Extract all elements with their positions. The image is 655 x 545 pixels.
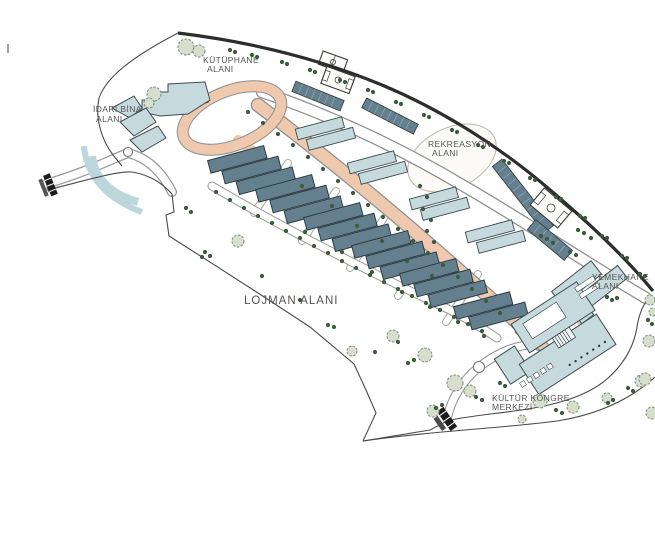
- tree-dot: [425, 229, 429, 233]
- tree-dot: [441, 263, 445, 267]
- tree-dot: [400, 290, 404, 294]
- tree-dot: [533, 178, 537, 182]
- tree-dot: [340, 250, 344, 254]
- tree-dot: [438, 308, 442, 312]
- tree: [347, 346, 357, 356]
- tree-dot: [480, 329, 484, 333]
- tree-dot: [554, 408, 558, 412]
- tree-dot: [380, 239, 384, 243]
- tree-dot: [484, 299, 488, 303]
- site-plan-page: KÜTÜPHANE ALANI İDARİ BİNA ALANI REKREAS…: [0, 0, 655, 545]
- tree-dot: [373, 350, 377, 354]
- tree-dot: [582, 231, 586, 235]
- tree-dot: [421, 207, 425, 211]
- tree-dot: [351, 191, 355, 195]
- tree-dot: [434, 406, 438, 410]
- west-roundabout: [124, 148, 133, 157]
- tree-dot: [455, 130, 459, 134]
- tree-dot: [507, 161, 511, 165]
- tree-dot: [405, 259, 409, 263]
- tree-dot: [260, 274, 264, 278]
- tree-dot: [306, 155, 310, 159]
- tree-dot: [574, 253, 578, 257]
- tree: [447, 375, 463, 391]
- tree-dot: [466, 322, 470, 326]
- tree-dot: [330, 204, 334, 208]
- tree-dot: [200, 255, 204, 259]
- tree-dot: [425, 195, 429, 199]
- tree-dot: [440, 403, 444, 407]
- tree-dot: [340, 259, 344, 263]
- tree-dot: [428, 305, 432, 309]
- tree-dot: [399, 102, 403, 106]
- tree-dot: [452, 315, 456, 319]
- tree-dot: [430, 274, 434, 278]
- tree-dot: [326, 323, 330, 327]
- tree-dot: [625, 256, 629, 260]
- tree-dot: [184, 206, 188, 210]
- tree-dot: [312, 244, 316, 248]
- tree-dot: [354, 266, 358, 270]
- label-admin-area: İDARİ BİNA: [93, 104, 142, 114]
- tree-dot: [545, 237, 549, 241]
- tree-dot: [300, 184, 304, 188]
- tree-dot: [482, 334, 486, 338]
- tree-dot: [381, 215, 385, 219]
- label-admin-area-2: ALANI: [96, 114, 123, 124]
- tree-dot: [208, 254, 212, 258]
- tree-dot: [394, 100, 398, 104]
- tree-dot: [429, 218, 433, 222]
- label-housing-area: LOJMAN ALANI: [244, 295, 338, 307]
- south-roundabout: [474, 362, 485, 373]
- tree-dot: [371, 90, 375, 94]
- tree-dot: [418, 184, 422, 188]
- tree-dot: [539, 234, 543, 238]
- tree-dot: [270, 221, 274, 225]
- tree-dot: [332, 325, 336, 329]
- parking-strip: [362, 98, 419, 134]
- tree-dot: [291, 143, 295, 147]
- tree: [464, 385, 476, 397]
- tree-dot: [583, 216, 587, 220]
- tree-dot: [214, 190, 218, 194]
- tree-dot: [313, 70, 317, 74]
- tree-dot: [326, 251, 330, 255]
- tree-dot: [410, 294, 414, 298]
- tree: [645, 295, 655, 305]
- tree-dot: [568, 250, 572, 254]
- tree-dot: [600, 234, 604, 238]
- tree-dot: [284, 229, 288, 233]
- tree-dot: [355, 224, 359, 228]
- tree-dot: [396, 287, 400, 291]
- tree-dot: [382, 280, 386, 284]
- tree-dot: [427, 115, 431, 119]
- tree-dot: [611, 398, 615, 402]
- tree-dot: [646, 318, 650, 322]
- tree-dot: [366, 88, 370, 92]
- tree-dot: [470, 287, 474, 291]
- tree: [639, 373, 651, 385]
- label-cafeteria-area-2: ALANI: [592, 281, 619, 291]
- tree-dot: [308, 68, 312, 72]
- tree-dot: [370, 270, 374, 274]
- tree-dot: [559, 197, 563, 201]
- tree: [232, 235, 244, 247]
- tree-dot: [406, 361, 410, 365]
- tree-dot: [242, 206, 246, 210]
- tree-dot: [498, 311, 502, 315]
- tree-dot: [554, 195, 558, 199]
- tree-dot: [426, 251, 430, 255]
- tree-dot: [256, 214, 260, 218]
- tree-dot: [422, 113, 426, 117]
- tree-dot: [298, 236, 302, 240]
- tree-dot: [610, 298, 614, 302]
- tree-dot: [396, 227, 400, 231]
- tree: [418, 348, 432, 362]
- label-recreation-area-2: ALANI: [432, 148, 459, 158]
- tree: [649, 308, 655, 316]
- tree-dot: [303, 230, 307, 234]
- tree: [646, 407, 655, 419]
- tree-dot: [424, 301, 428, 305]
- tree-dot: [450, 128, 454, 132]
- tree-dot: [203, 250, 207, 254]
- tree-dot: [631, 389, 635, 393]
- tree-dot: [576, 228, 580, 232]
- tree-dot: [650, 322, 654, 326]
- label-culture-center-2: MERKEZİ: [492, 402, 533, 412]
- tree-dot: [456, 275, 460, 279]
- tree-dot: [620, 254, 624, 258]
- tree-dot: [411, 239, 415, 243]
- tree-dot: [551, 241, 555, 245]
- tree-dot: [336, 179, 340, 183]
- tree: [643, 335, 655, 347]
- tree-dot: [474, 395, 478, 399]
- tree-dot: [626, 386, 630, 390]
- tree: [178, 39, 194, 55]
- tree-dot: [412, 358, 416, 362]
- tree-dot: [280, 60, 284, 64]
- label-library-area-2: ALANI: [207, 64, 234, 74]
- tree-dot: [321, 167, 325, 171]
- tree: [518, 415, 526, 423]
- tree-dot: [589, 236, 593, 240]
- tree-dot: [396, 340, 400, 344]
- tree-dot: [456, 320, 460, 324]
- tree-dot: [528, 176, 532, 180]
- tree-dot: [276, 132, 280, 136]
- tree-dot: [578, 214, 582, 218]
- tree-dot: [560, 411, 564, 415]
- tree-dot: [343, 80, 347, 84]
- tree-dot: [432, 240, 436, 244]
- tree-dot: [228, 48, 232, 52]
- tree-dot: [503, 384, 507, 388]
- tree-dot: [246, 110, 250, 114]
- tree-dot: [189, 210, 193, 214]
- tree: [144, 98, 154, 108]
- tree-dot: [606, 401, 610, 405]
- tree-dot: [338, 78, 342, 82]
- tree-dot: [285, 62, 289, 66]
- tree-dot: [228, 198, 232, 202]
- tree-dot: [605, 236, 609, 240]
- tree-dot: [615, 296, 619, 300]
- tree-dot: [498, 381, 502, 385]
- tree-dot: [366, 203, 370, 207]
- tree-dot: [480, 398, 484, 402]
- site-plan-canvas: KÜTÜPHANE ALANI İDARİ BİNA ALANI REKREAS…: [0, 0, 655, 545]
- tree-dot: [502, 159, 506, 163]
- tree-dot: [261, 121, 265, 125]
- tree-dot: [233, 50, 237, 54]
- tree-dot: [605, 295, 609, 299]
